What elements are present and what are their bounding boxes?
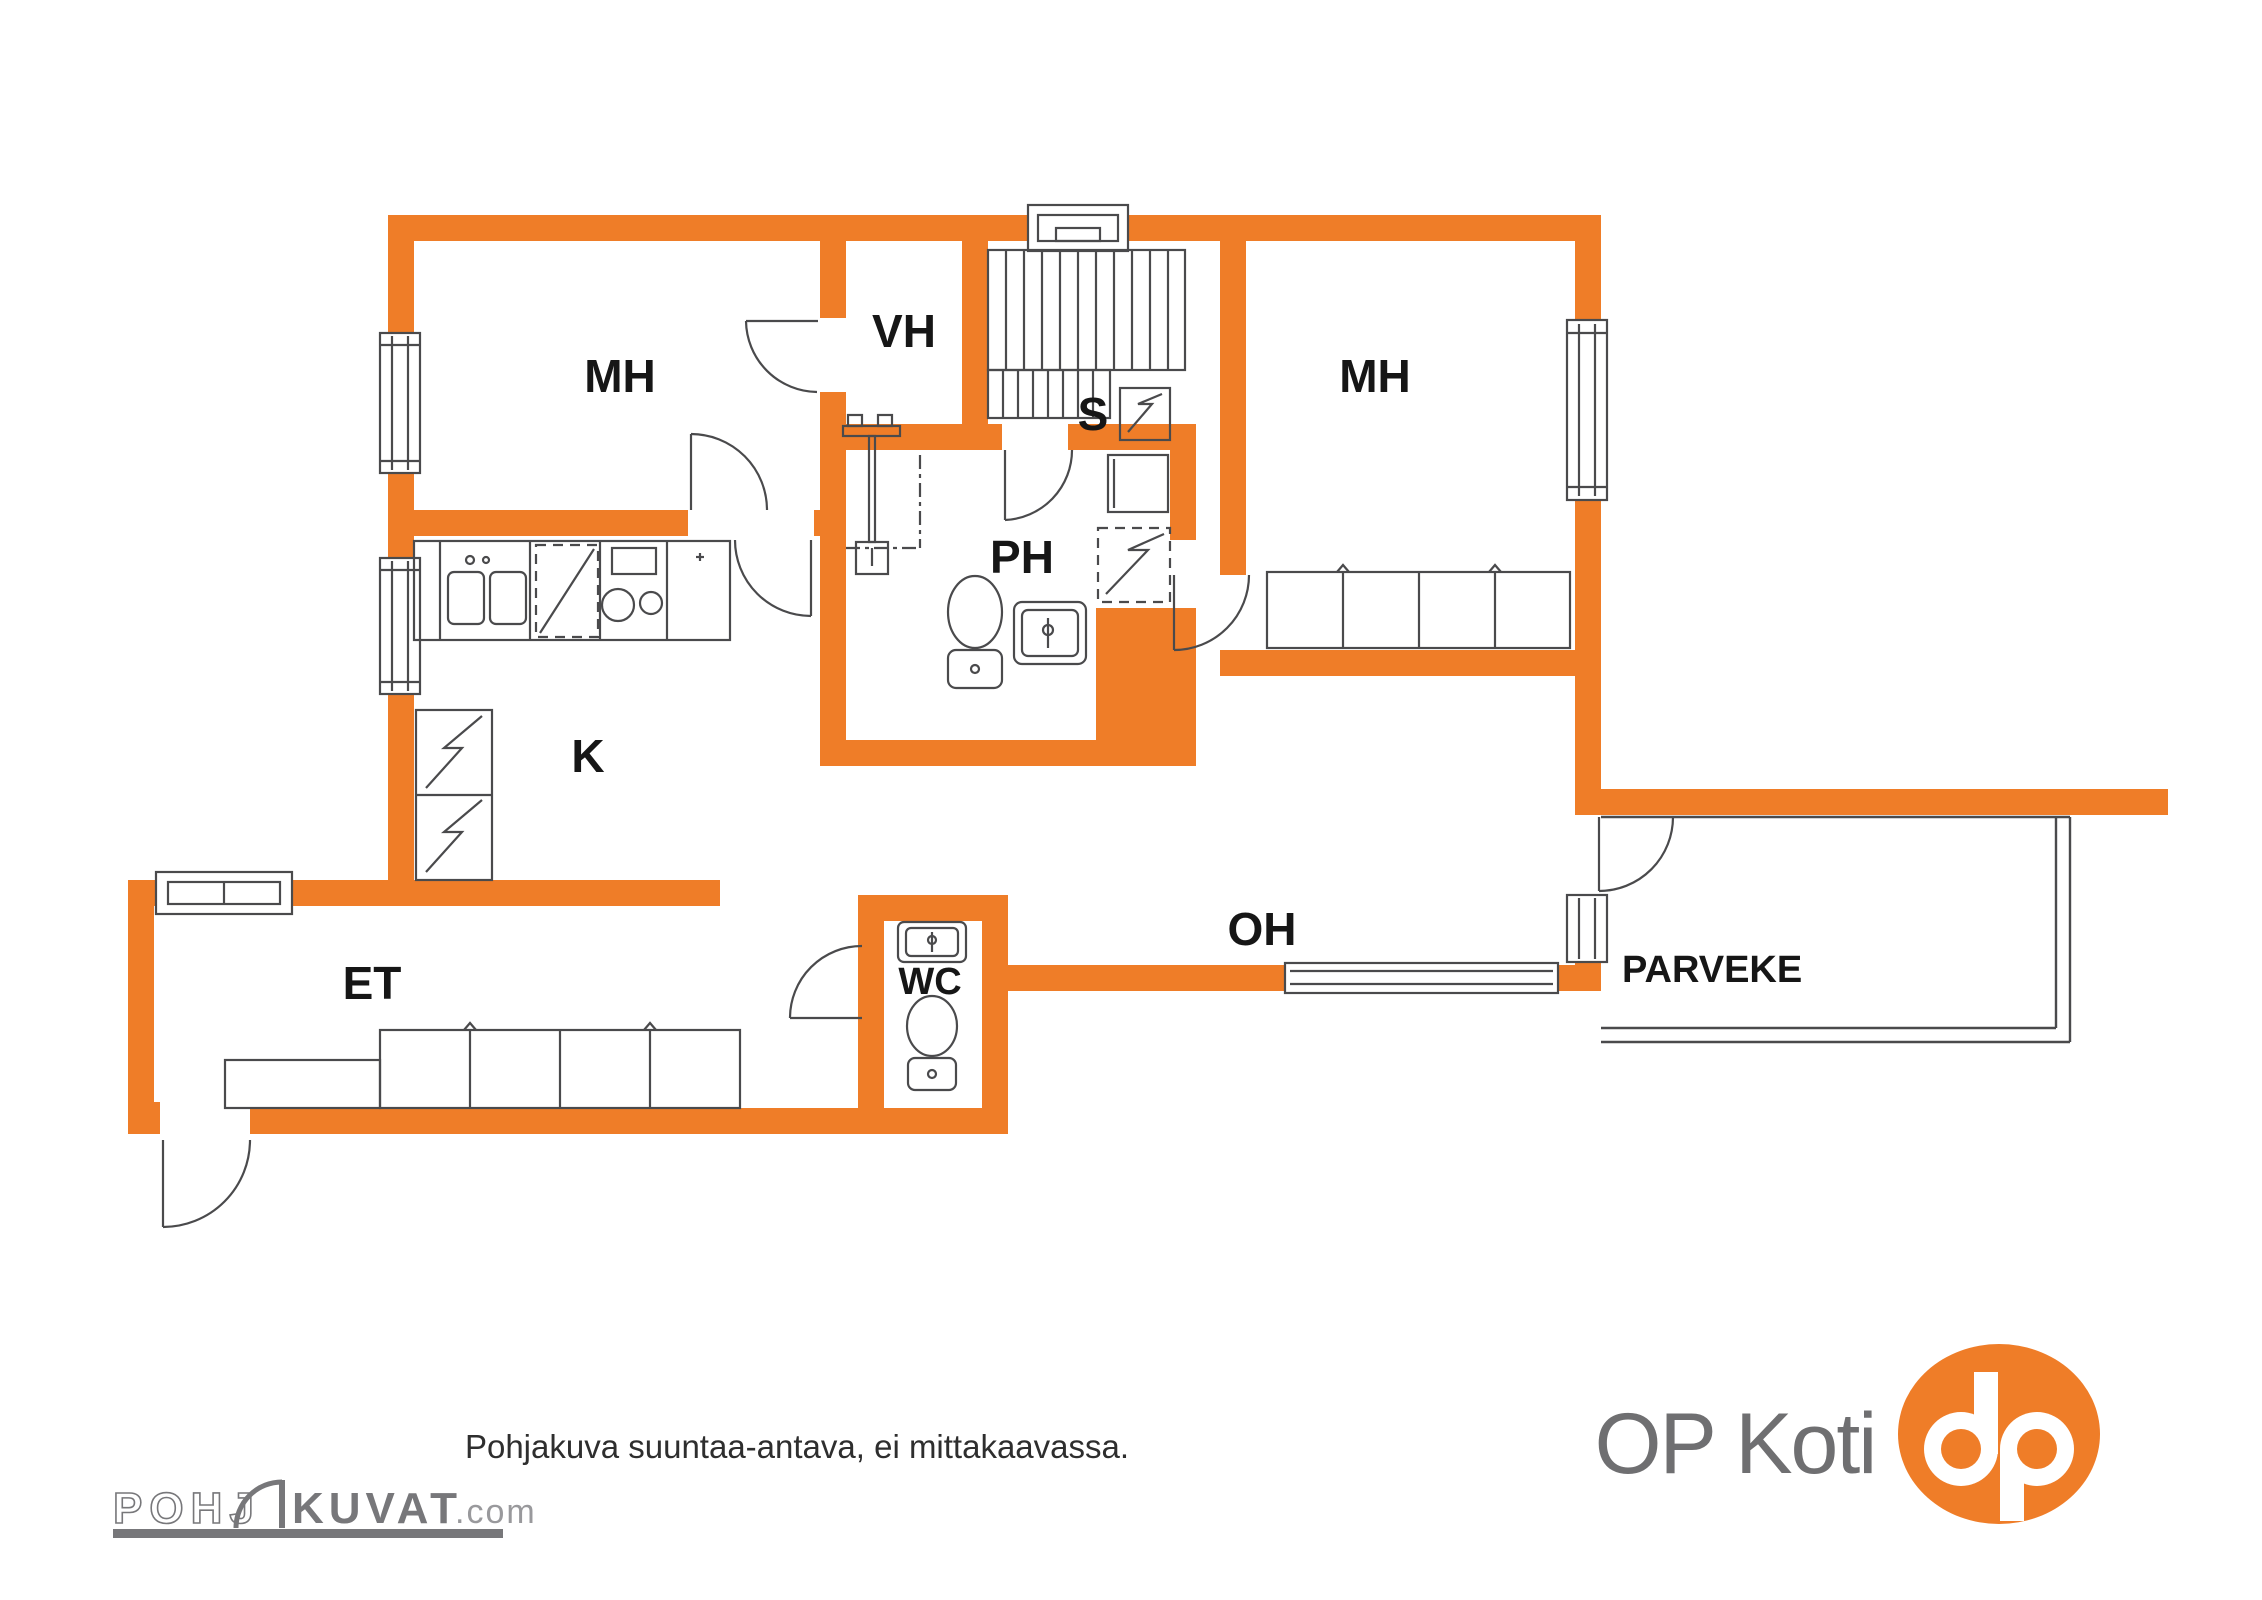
door-vh [746, 321, 818, 392]
window-stairs-top [1028, 205, 1128, 251]
wall-oh-bottom-b [1558, 965, 1601, 991]
label-sauna: S [1078, 388, 1109, 440]
wardrobe-et [225, 1023, 740, 1108]
sink-basin-right [490, 572, 526, 624]
window-oh-bottom [1285, 963, 1558, 993]
stove-burner-large [602, 589, 634, 621]
sink-ph [1014, 602, 1086, 664]
window-mh-left [380, 333, 420, 473]
kitchen-tall-cabinets [416, 710, 492, 880]
op-koti-branding: OP Koti [1595, 1344, 2100, 1524]
label-wc: WC [898, 961, 961, 1003]
wall-bottom-corner [128, 1102, 160, 1134]
wall-oh-bottom-a [1008, 965, 1285, 991]
hood [612, 548, 656, 574]
sink-wc [898, 922, 966, 962]
wall-left-a [388, 241, 414, 333]
label-oh: OH [1228, 903, 1297, 955]
wall-mh2-bottom [1220, 650, 1601, 676]
label-vh: VH [872, 305, 936, 357]
wall-wc-left [858, 895, 884, 1134]
footer: Pohjakuva suuntaa-antava, ei mittakaavas… [113, 1344, 2100, 1538]
label-ph: PH [990, 531, 1054, 583]
balcony-outline [1601, 817, 2070, 1042]
wall-ph-bottom [820, 740, 1096, 766]
op-logo-icon [1898, 1344, 2100, 1524]
wall-center-upper [820, 241, 846, 318]
vent-et-wall [156, 872, 292, 914]
wall-center-lower [820, 392, 846, 766]
door-mh-left [691, 434, 767, 510]
window-mh-right [1567, 320, 1607, 500]
sink-basin-left [448, 572, 484, 624]
stove-burner-small [640, 592, 662, 614]
label-mh-left: MH [584, 350, 656, 402]
pohjakuvat-logo: POHJ KUVAT .com [113, 1480, 537, 1538]
label-kitchen: K [571, 730, 604, 782]
wall-vh-stairs [962, 241, 988, 424]
kitchen-fixtures [414, 541, 730, 880]
op-koti-text: OP Koti [1595, 1396, 1876, 1492]
wall-mh1-bottom-a [414, 510, 688, 536]
wall-balcony-band [1575, 789, 2168, 815]
door-ph [1005, 450, 1072, 520]
floor-plan: MH VH S MH PH K ET WC OH PARVEKE Pohjaku… [0, 0, 2262, 1600]
disclaimer-text: Pohjakuva suuntaa-antava, ei mittakaavas… [465, 1428, 1129, 1465]
wall-mh2-left-upper [1220, 241, 1246, 575]
wardrobe-mh-right [1267, 565, 1570, 648]
door-balcony [1599, 817, 1673, 891]
wall-ph-nook [1170, 450, 1196, 540]
label-mh-right: MH [1339, 350, 1411, 402]
wall-bottom [250, 1108, 1008, 1134]
washing-machine [1108, 455, 1168, 512]
wall-wc-top [858, 895, 1008, 921]
bench-et [225, 1060, 380, 1108]
label-parveke: PARVEKE [1622, 949, 1802, 991]
wall-et-left [128, 906, 154, 1108]
wall-ph-corner [1096, 608, 1196, 766]
wall-et-top-b [290, 880, 720, 906]
wall-left-b [388, 473, 414, 558]
door-entrance [163, 1140, 250, 1227]
wall-right-upper [1575, 215, 1601, 320]
wall-wc-right [982, 895, 1008, 1134]
window-balcony-side [1567, 895, 1607, 962]
pohjakuvat-underline [113, 1529, 503, 1538]
pohjakuvat-solid-text: KUVAT [292, 1484, 462, 1533]
door-kitchen [735, 540, 811, 616]
label-et: ET [343, 957, 402, 1009]
toilet-ph [948, 576, 1002, 688]
walls [128, 215, 2168, 1134]
toilet-wc [907, 996, 957, 1090]
wall-right-mid [1575, 500, 1601, 789]
pohjakuvat-suffix-text: .com [455, 1493, 537, 1531]
wall-top [388, 215, 1601, 241]
water-heater [1098, 528, 1170, 602]
wc-fixtures [898, 922, 966, 1090]
wall-left-c [388, 694, 414, 880]
furniture [225, 565, 1570, 1108]
door-wc [790, 946, 862, 1018]
wall-et-top-a [128, 880, 158, 906]
